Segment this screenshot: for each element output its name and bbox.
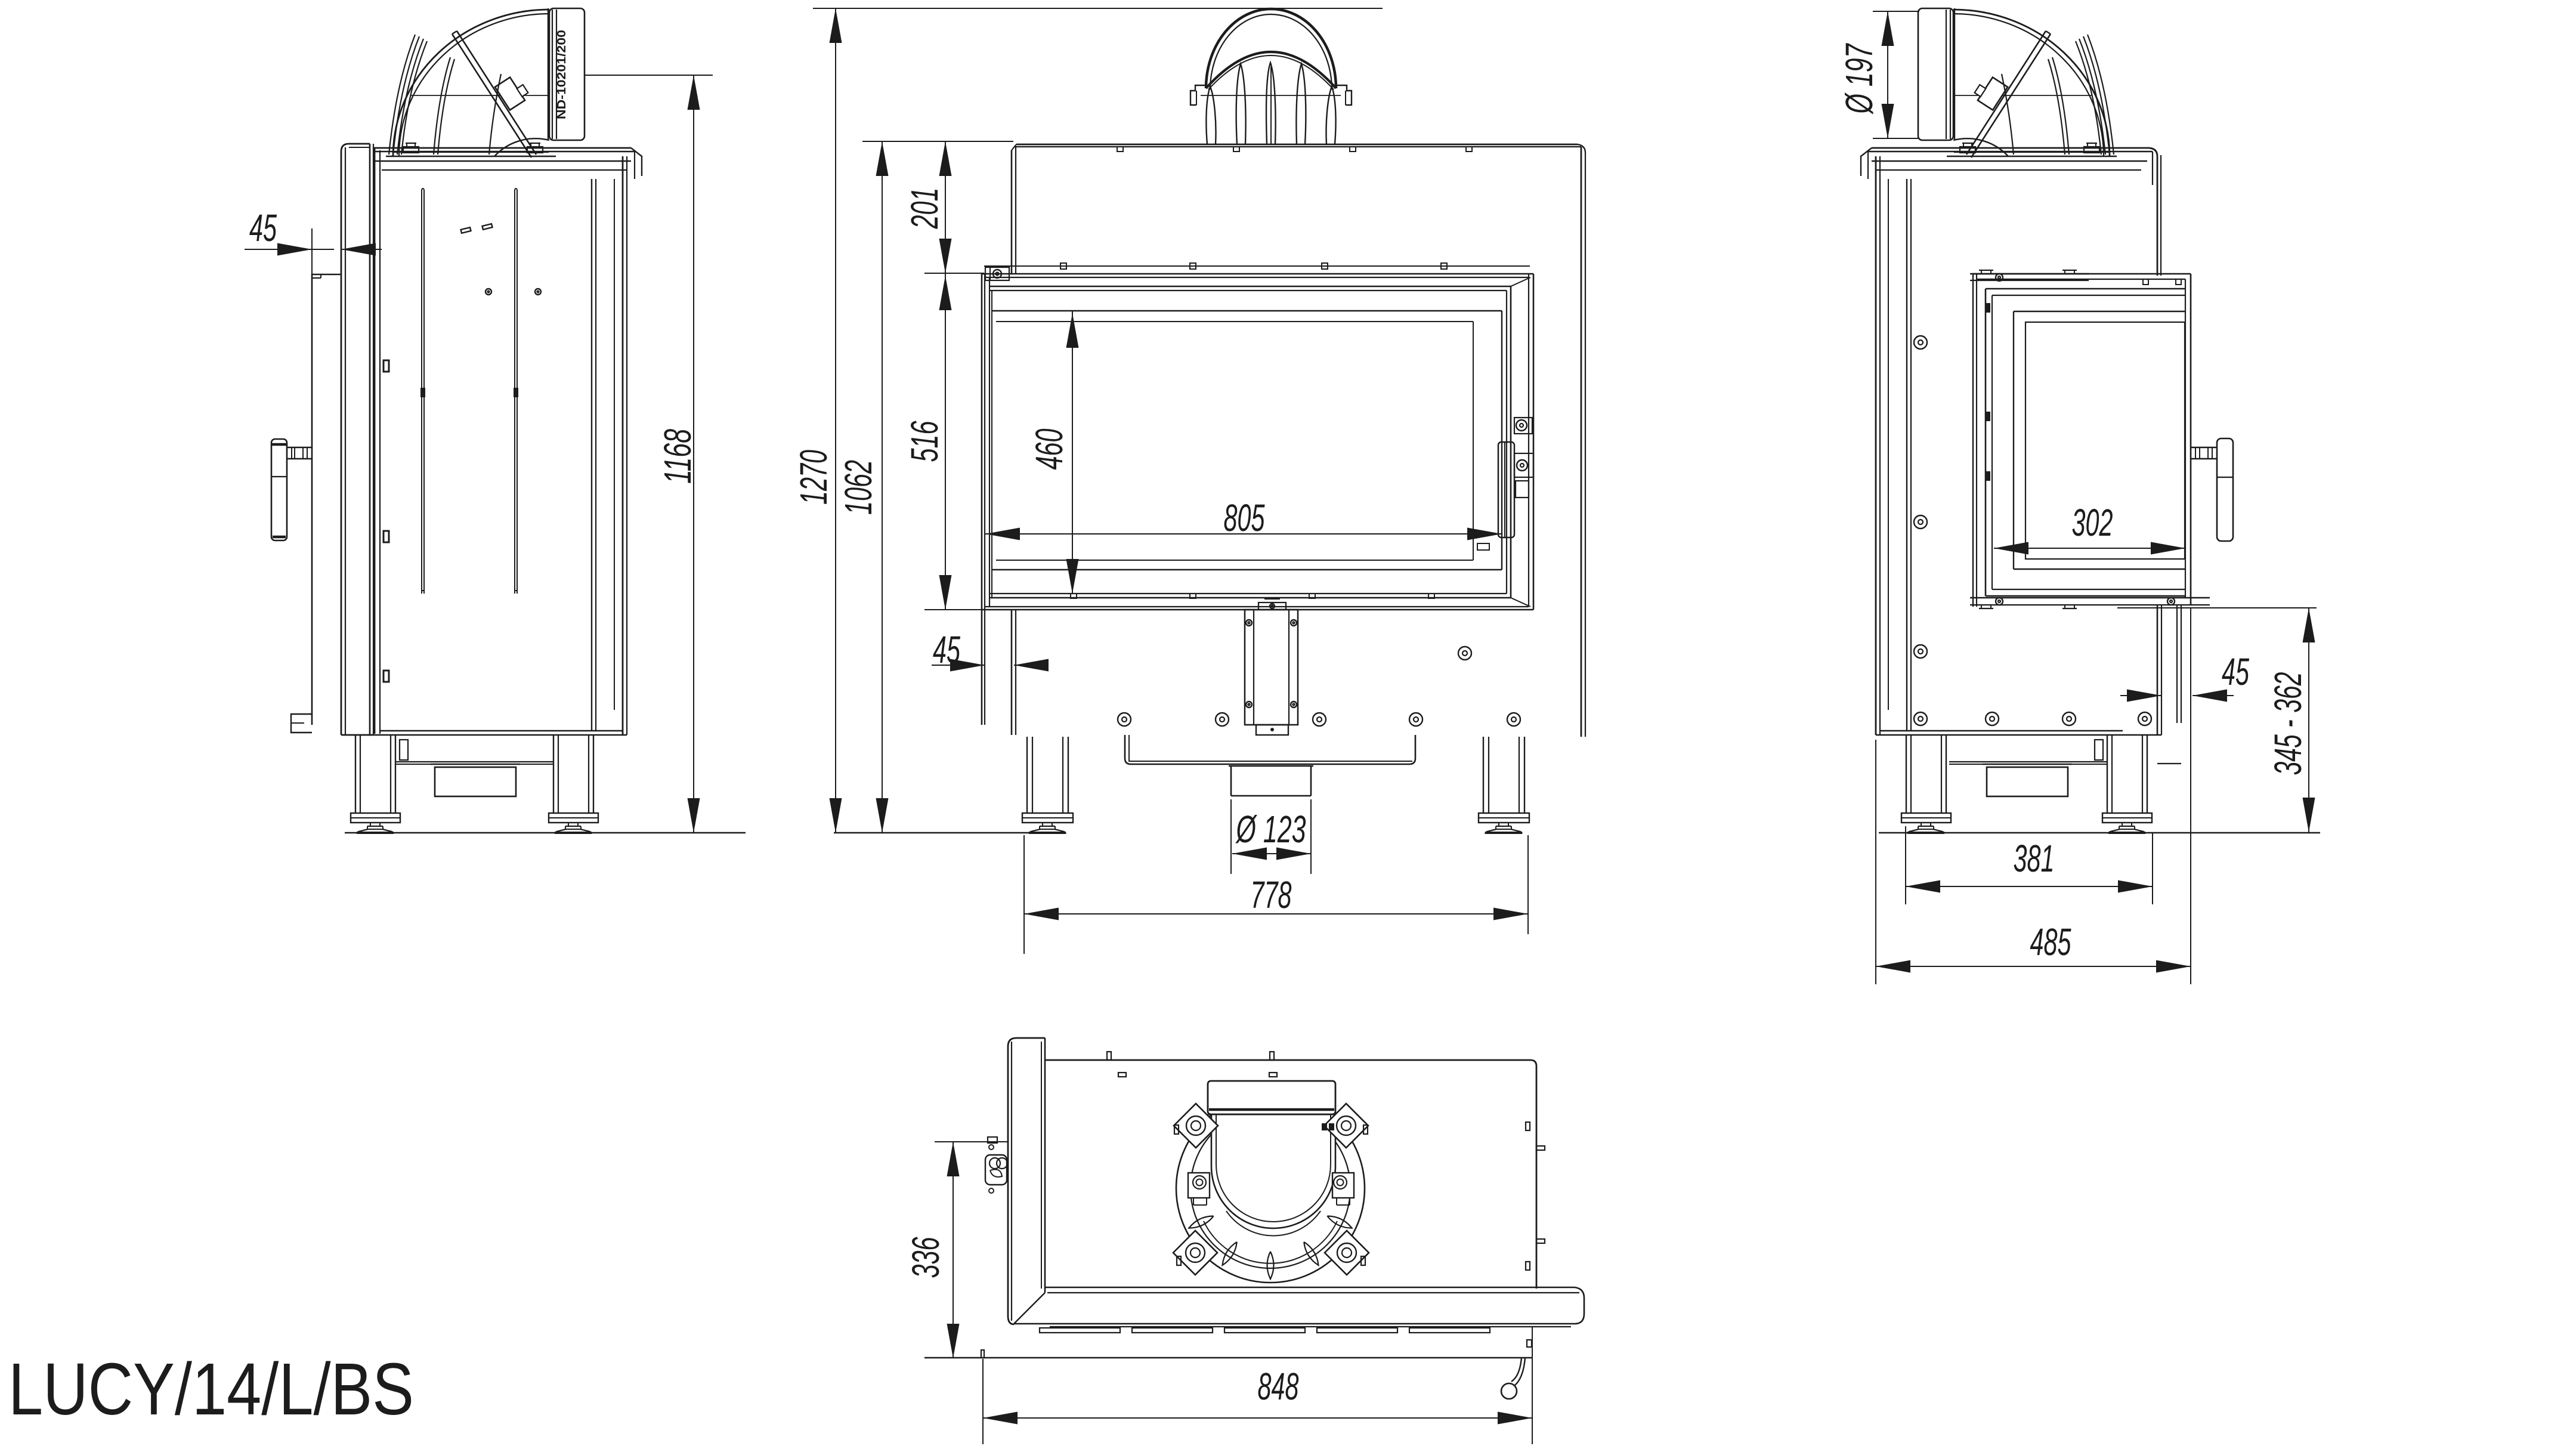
svg-text:45: 45 [2222,650,2249,693]
svg-text:336: 336 [904,1237,947,1278]
svg-text:45: 45 [249,206,277,249]
svg-text:45: 45 [933,628,960,671]
svg-text:381: 381 [2014,837,2055,880]
svg-text:Ø 123: Ø 123 [1235,808,1306,851]
svg-text:805: 805 [1224,496,1265,539]
svg-text:345 - 362: 345 - 362 [2266,672,2309,776]
svg-text:516: 516 [903,421,946,462]
svg-text:485: 485 [2030,920,2071,963]
svg-text:1270: 1270 [792,450,835,505]
svg-text:LUCY/14/L/BS: LUCY/14/L/BS [8,1349,414,1431]
svg-text:778: 778 [1251,873,1292,916]
svg-text:460: 460 [1028,428,1071,469]
svg-text:Ø 197: Ø 197 [1838,43,1881,115]
svg-text:1168: 1168 [656,429,699,484]
svg-text:201: 201 [903,188,946,230]
svg-text:848: 848 [1258,1365,1299,1408]
svg-text:302: 302 [2072,501,2113,544]
svg-text:1062: 1062 [837,460,880,515]
svg-text:ND-10201/200: ND-10201/200 [555,30,568,119]
